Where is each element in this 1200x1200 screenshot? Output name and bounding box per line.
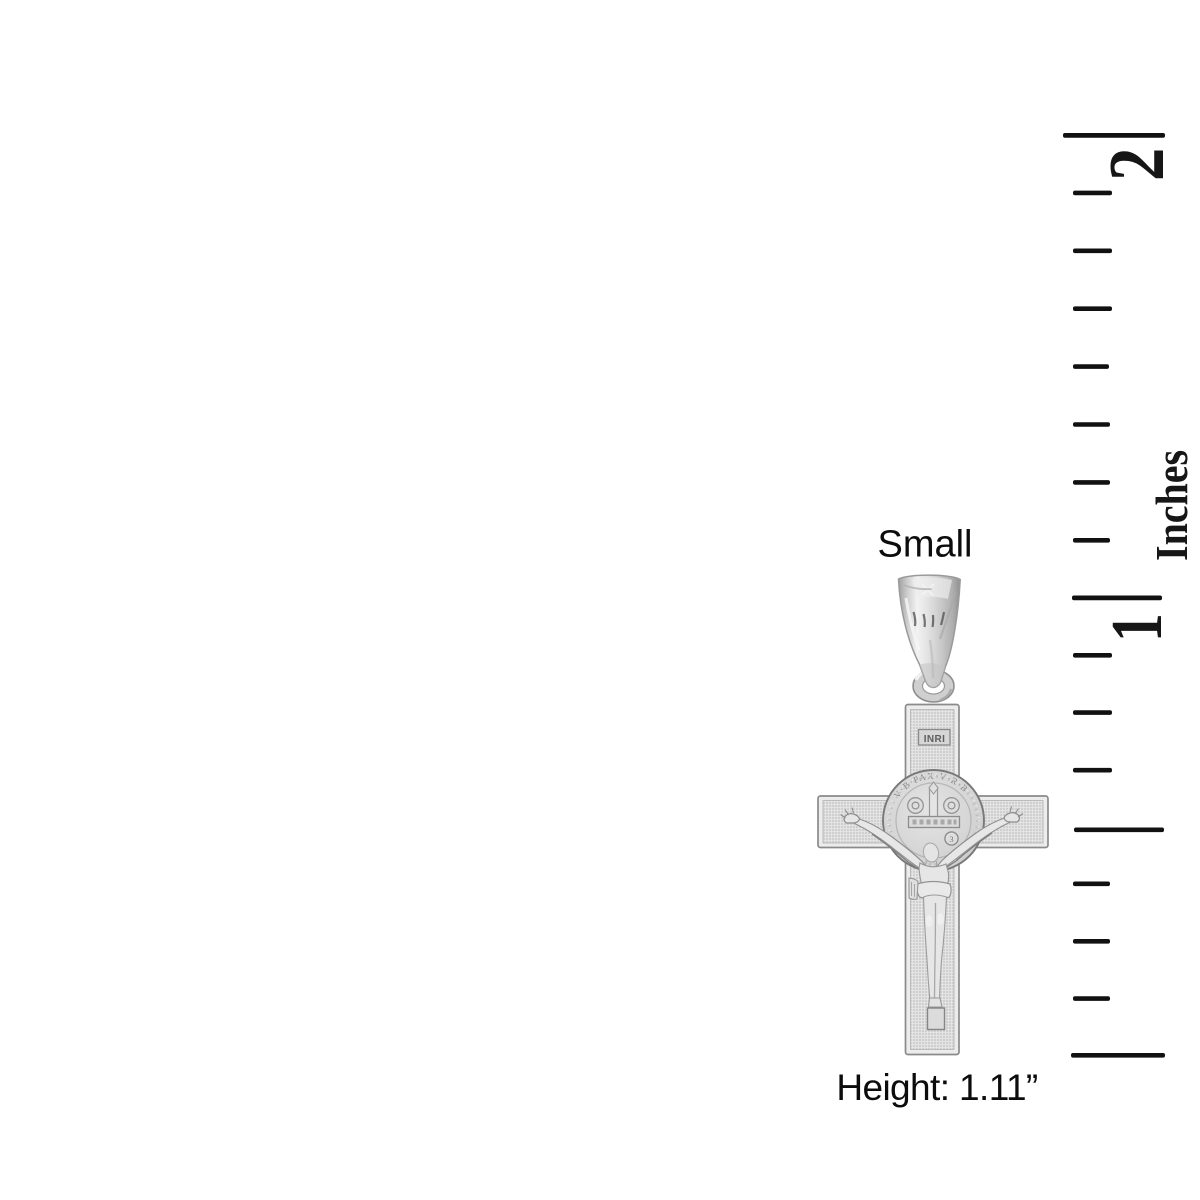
- svg-text:Height: 1.11”: Height: 1.11”: [836, 1067, 1037, 1108]
- svg-text:3: 3: [949, 834, 953, 844]
- svg-text:2: 2: [1093, 148, 1181, 181]
- svg-text:Inches: Inches: [1148, 450, 1198, 561]
- svg-text:Small: Small: [877, 524, 972, 566]
- svg-text:1: 1: [1097, 613, 1178, 642]
- svg-text:INRI: INRI: [924, 734, 946, 745]
